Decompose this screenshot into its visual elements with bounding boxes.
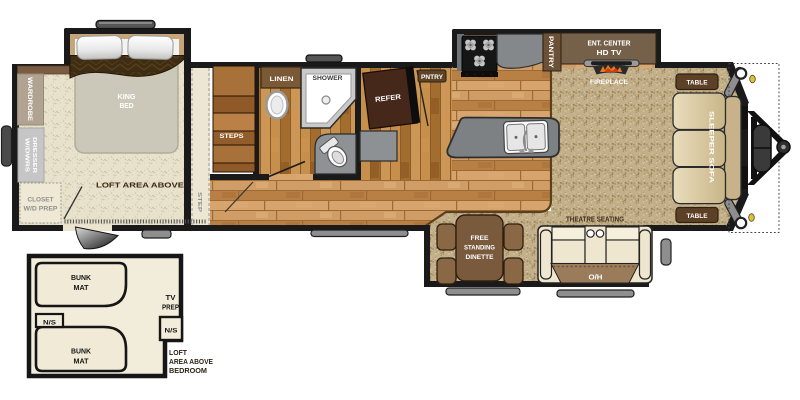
svg-text:BUNK: BUNK xyxy=(71,273,92,282)
svg-text:SLEEPER SOFA: SLEEPER SOFA xyxy=(708,111,715,184)
svg-text:W/DWRS: W/DWRS xyxy=(24,138,30,172)
svg-text:PREP: PREP xyxy=(162,303,179,312)
svg-text:LOFT: LOFT xyxy=(169,348,188,357)
svg-text:ENT. CENTER: ENT. CENTER xyxy=(588,41,631,48)
svg-text:SHOWER: SHOWER xyxy=(313,75,344,82)
svg-text:STANDING: STANDING xyxy=(464,245,495,252)
svg-text:O/H: O/H xyxy=(589,273,603,282)
svg-text:N/S: N/S xyxy=(165,328,179,335)
svg-text:TABLE: TABLE xyxy=(687,81,708,87)
svg-text:AREA ABOVE: AREA ABOVE xyxy=(169,357,213,366)
svg-text:MAT: MAT xyxy=(74,283,90,292)
svg-text:KING: KING xyxy=(118,94,137,101)
svg-text:CLOSET: CLOSET xyxy=(28,197,55,204)
svg-text:BEDROOM: BEDROOM xyxy=(169,366,207,375)
svg-text:MAT: MAT xyxy=(74,357,90,366)
svg-text:DINETTE: DINETTE xyxy=(466,254,495,261)
svg-text:TABLE: TABLE xyxy=(687,214,708,220)
svg-text:STEPS: STEPS xyxy=(220,133,244,140)
svg-text:TV: TV xyxy=(166,293,176,302)
svg-text:STEP: STEP xyxy=(196,192,202,212)
svg-text:N/S: N/S xyxy=(43,320,57,327)
svg-text:PANTRY: PANTRY xyxy=(547,36,554,69)
svg-text:PNTRY: PNTRY xyxy=(421,74,444,81)
svg-text:BED: BED xyxy=(120,103,134,110)
svg-text:HD TV: HD TV xyxy=(597,50,622,57)
svg-text:FIREPLACE: FIREPLACE xyxy=(590,79,629,86)
svg-text:LINEN: LINEN xyxy=(270,76,294,83)
svg-text:W/D PREP: W/D PREP xyxy=(24,206,58,213)
svg-text:FREE: FREE xyxy=(471,235,490,242)
svg-text:THEATRE SEATING: THEATRE SEATING xyxy=(566,215,624,224)
svg-text:LOFT AREA ABOVE: LOFT AREA ABOVE xyxy=(96,181,184,190)
svg-text:BUNK: BUNK xyxy=(71,347,92,356)
svg-text:DRESSER: DRESSER xyxy=(31,137,37,174)
svg-text:WARDROBE: WARDROBE xyxy=(26,77,33,121)
